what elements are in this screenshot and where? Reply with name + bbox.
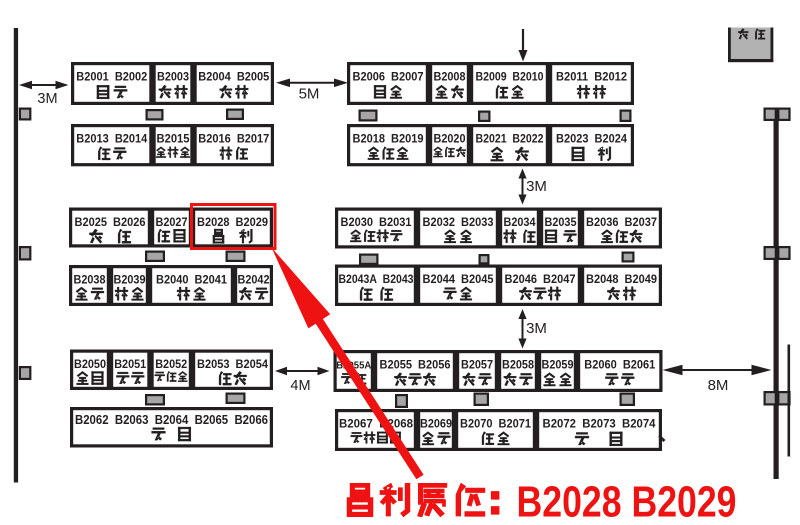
svg-text:B2008: B2008 <box>434 70 466 84</box>
svg-text:B2015: B2015 <box>157 134 191 146</box>
svg-text:B2044 B2045: B2044 B2045 <box>423 272 494 286</box>
svg-text:B2059: B2059 <box>542 358 574 372</box>
svg-text:B2016 B2017: B2016 B2017 <box>198 132 269 146</box>
svg-text:B2058: B2058 <box>502 358 534 372</box>
svg-text:3M: 3M <box>526 320 547 337</box>
svg-text:B2040 B2041: B2040 B2041 <box>156 273 227 287</box>
svg-text:B2001 B2002: B2001 B2002 <box>76 70 147 84</box>
svg-text:B2070 B2071: B2070 B2071 <box>460 417 531 431</box>
svg-text:B2025 B2026: B2025 B2026 <box>75 215 146 229</box>
svg-text:B2034: B2034 <box>504 215 536 229</box>
svg-text:B2023 B2024: B2023 B2024 <box>556 132 627 146</box>
svg-text:8M: 8M <box>708 377 729 394</box>
svg-text:B2030 B2031: B2030 B2031 <box>341 215 412 229</box>
svg-text:B2003: B2003 <box>157 70 189 84</box>
svg-text:B2020: B2020 <box>434 132 466 146</box>
svg-text:B2072 B2073 B2074: B2072 B2073 B2074 <box>543 417 656 431</box>
svg-text:B2028 B2029: B2028 B2029 <box>517 478 737 525</box>
svg-text:B2035: B2035 <box>545 215 577 229</box>
svg-text:B2038: B2038 <box>74 273 106 287</box>
svg-text:B2018 B2019: B2018 B2019 <box>353 132 424 146</box>
svg-text:B2028 B2029: B2028 B2029 <box>197 215 268 229</box>
svg-text:B2057: B2057 <box>461 358 493 372</box>
svg-text:5M: 5M <box>299 86 320 103</box>
svg-text:B2039: B2039 <box>114 273 146 287</box>
svg-text:B2052: B2052 <box>155 357 187 371</box>
svg-text:B2046 B2047: B2046 B2047 <box>505 272 576 286</box>
svg-text:B2043A B2043: B2043A B2043 <box>339 274 414 286</box>
svg-text:3M: 3M <box>37 91 57 107</box>
svg-text:B2067 B2068: B2067 B2068 <box>339 417 413 431</box>
svg-text:B2021 B2022: B2021 B2022 <box>476 132 544 146</box>
svg-text:4M: 4M <box>290 378 310 394</box>
svg-text:B2013 B2014: B2013 B2014 <box>76 132 147 146</box>
svg-text:B2011 B2012: B2011 B2012 <box>556 70 627 84</box>
svg-text:B2009 B2010: B2009 B2010 <box>476 70 544 84</box>
svg-text:B2027: B2027 <box>156 215 188 229</box>
svg-text:B2004 B2005: B2004 B2005 <box>198 70 269 84</box>
svg-text:B2050: B2050 <box>74 357 106 371</box>
svg-text:B2055 B2056: B2055 B2056 <box>380 358 451 372</box>
svg-text:B2051: B2051 <box>114 357 146 371</box>
svg-text:B2062 B2063 B2064 B2065 B2: B2062 B2063 B2064 B2065 B2066 <box>75 412 268 427</box>
svg-text:B2042: B2042 <box>238 273 270 287</box>
svg-text:B2036 B2037: B2036 B2037 <box>586 215 657 229</box>
svg-text:B2053 B2054: B2053 B2054 <box>197 357 268 371</box>
svg-text:3M: 3M <box>526 178 547 195</box>
svg-text:B2006 B2007: B2006 B2007 <box>353 70 424 84</box>
svg-text:B2032 B2033: B2032 B2033 <box>423 215 494 229</box>
svg-text:B2069: B2069 <box>420 417 452 431</box>
svg-text:B2048 B2049: B2048 B2049 <box>586 272 657 286</box>
svg-text:B2060 B2061: B2060 B2061 <box>584 358 655 372</box>
